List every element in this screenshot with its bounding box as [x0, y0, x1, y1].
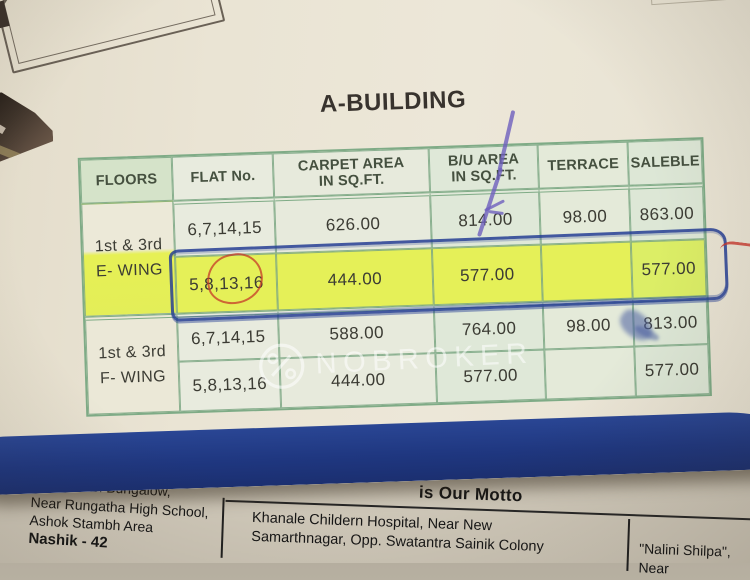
header-line: IN SQ.FT.	[451, 167, 517, 185]
header-line: IN SQ.FT.	[319, 172, 385, 190]
wing-label: E- WING	[96, 258, 164, 285]
header-line: CARPET AREA	[298, 155, 405, 175]
floorplan-faint-outline	[650, 0, 750, 5]
photo-corner-edge	[0, 134, 27, 164]
header-line: FLOORS	[95, 171, 157, 189]
floors-label: 1st & 3rd	[94, 233, 162, 260]
column-header-flat-no: FLAT No.	[172, 153, 274, 200]
floorplan-fragment: TER 9'9"X4'6"	[0, 0, 225, 74]
floors-label: 1st & 3rd	[98, 340, 166, 367]
header-line: SALEBLE	[630, 153, 700, 172]
column-header-saleble: SALEBLE	[627, 139, 702, 185]
column-header-bu-area: B/U AREAIN SQ.FT.	[429, 145, 539, 193]
floorplan-inner-outline	[0, 0, 216, 64]
address-line: "Nalini Shilpa",	[639, 539, 731, 561]
brochure-page: TER 9'9"X4'6" A-BUILDING FLOORS FLAT No.…	[0, 0, 750, 495]
table-cell-terrace	[544, 347, 636, 400]
watermark-text: NOBROKER	[315, 337, 534, 381]
column-header-carpet-area: CARPET AREAIN SQ.FT.	[273, 148, 430, 197]
address-line: Near	[638, 558, 730, 580]
nobroker-key-logo-icon	[256, 340, 308, 392]
group-cell-e-wing: 1st & 3rd E- WING	[81, 201, 177, 317]
group-cell-f-wing: 1st & 3rd F- WING	[85, 314, 180, 415]
address-block-middle: Khanale Childern Hospital, Near New Sama…	[251, 509, 545, 557]
header-line: FLAT No.	[190, 168, 255, 186]
wing-label: F- WING	[100, 365, 167, 392]
page-title: A-BUILDING	[283, 85, 504, 120]
underpage-column-divider-left	[221, 498, 225, 558]
table-cell-saleble: 577.00	[634, 344, 710, 396]
photo-corner-fragment	[0, 91, 54, 166]
address-block-right: "Nalini Shilpa", Near	[638, 539, 731, 579]
column-header-floors: FLOORS	[80, 157, 173, 204]
underpage-column-divider-right	[626, 519, 630, 571]
photo-corner-highlight	[0, 111, 6, 135]
motto-text: is Our Motto	[419, 483, 523, 507]
header-line: TERRACE	[547, 156, 619, 175]
column-header-terrace: TERRACE	[538, 142, 629, 189]
